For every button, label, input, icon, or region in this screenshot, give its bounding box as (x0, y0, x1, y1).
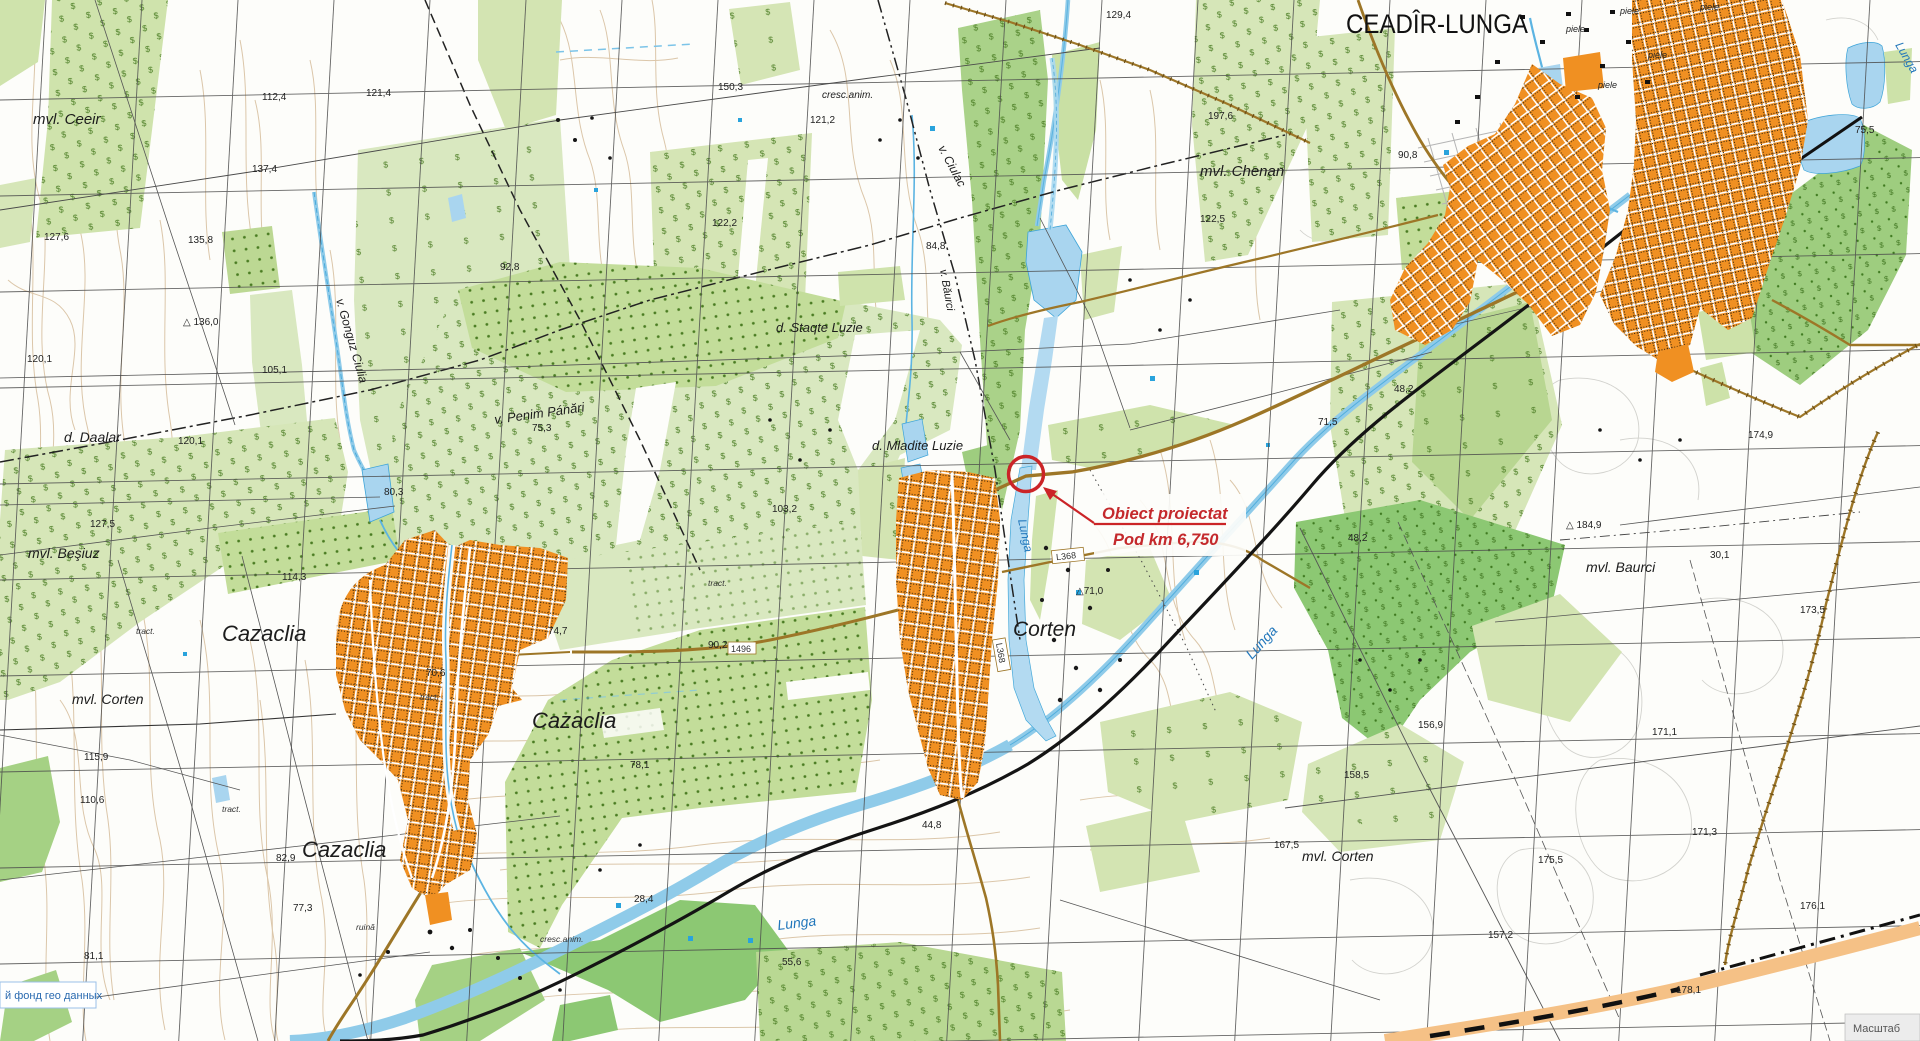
svg-text:80,3: 80,3 (384, 487, 404, 498)
svg-text:77,3: 77,3 (293, 903, 313, 914)
svg-text:82,9: 82,9 (276, 853, 296, 864)
svg-text:156,9: 156,9 (1418, 720, 1443, 731)
svg-text:90,8: 90,8 (1398, 150, 1418, 161)
svg-text:piele: piele (1597, 80, 1617, 90)
svg-text:121,4: 121,4 (366, 88, 391, 99)
svg-text:129,4: 129,4 (1106, 10, 1131, 21)
svg-text:137,4: 137,4 (252, 164, 277, 175)
svg-text:71,5: 71,5 (1318, 417, 1338, 428)
svg-text:174,9: 174,9 (1748, 430, 1773, 441)
svg-text:92,8: 92,8 (500, 262, 520, 273)
svg-text:75,3: 75,3 (532, 423, 552, 434)
svg-text:△ 136,0: △ 136,0 (183, 317, 219, 328)
svg-text:110,6: 110,6 (80, 795, 105, 806)
svg-text:44,8: 44,8 (922, 820, 942, 831)
svg-text:120,1: 120,1 (27, 354, 52, 365)
svg-text:28,4: 28,4 (634, 894, 654, 905)
svg-text:175,5: 175,5 (1538, 855, 1563, 866)
svg-text:176,1: 176,1 (1800, 901, 1825, 912)
svg-text:tract.: tract. (708, 578, 727, 588)
svg-text:△71,0: △71,0 (1076, 586, 1104, 597)
svg-text:piele: piele (1565, 24, 1585, 34)
svg-text:48,2: 48,2 (1348, 533, 1368, 544)
svg-text:90,2: 90,2 (708, 640, 728, 651)
svg-text:tract.: tract. (420, 692, 439, 702)
svg-text:Масштаб: Масштаб (1853, 1023, 1900, 1035)
svg-text:d. Mladite Luzie: d. Mladite Luzie (872, 438, 963, 453)
svg-text:70,6: 70,6 (426, 668, 446, 679)
svg-text:mvl. Corten: mvl. Corten (72, 691, 144, 707)
svg-text:d. Daalar: d. Daalar (64, 429, 122, 445)
svg-text:Pod km 6,750: Pod km 6,750 (1113, 531, 1219, 549)
svg-text:150,3: 150,3 (718, 82, 743, 93)
svg-text:171,3: 171,3 (1692, 827, 1717, 838)
svg-text:△ 184,9: △ 184,9 (1566, 520, 1602, 531)
svg-text:171,1: 171,1 (1652, 727, 1677, 738)
svg-text:piele: piele (1619, 6, 1639, 16)
svg-text:mvl. Beşiuz: mvl. Beşiuz (28, 545, 100, 561)
svg-text:105,1: 105,1 (262, 365, 287, 376)
svg-text:167,5: 167,5 (1274, 840, 1299, 851)
svg-text:81,1: 81,1 (84, 951, 104, 962)
svg-text:74,7: 74,7 (548, 626, 568, 637)
svg-text:Cazaclia: Cazaclia (302, 837, 386, 862)
svg-text:й фонд гео данных: й фонд гео данных (5, 990, 103, 1002)
svg-text:tract.: tract. (222, 804, 241, 814)
svg-text:173,5: 173,5 (1800, 605, 1825, 616)
svg-text:127,5: 127,5 (90, 519, 115, 530)
svg-text:84,8: 84,8 (926, 241, 946, 252)
svg-text:122,5: 122,5 (1200, 214, 1225, 225)
svg-text:158,5: 158,5 (1344, 770, 1369, 781)
svg-text:115,9: 115,9 (84, 752, 109, 763)
svg-text:Obiect proiectat: Obiect proiectat (1102, 505, 1229, 523)
svg-text:tract.: tract. (136, 626, 155, 636)
svg-text:122,2: 122,2 (712, 218, 737, 229)
svg-text:mvl. Corten: mvl. Corten (1302, 848, 1374, 864)
svg-text:55,6: 55,6 (782, 957, 802, 968)
svg-text:piele: piele (1647, 50, 1667, 60)
svg-text:120,1: 120,1 (178, 436, 203, 447)
svg-text:cresc.anim.: cresc.anim. (540, 934, 583, 944)
svg-text:178,1: 178,1 (1676, 985, 1701, 996)
svg-text:Corten: Corten (1013, 618, 1076, 641)
svg-text:mvl. Ceeir: mvl. Ceeir (33, 111, 102, 128)
svg-text:103,2: 103,2 (772, 504, 797, 515)
svg-text:Cazaclia: Cazaclia (532, 708, 616, 733)
svg-text:mvl. Baurci: mvl. Baurci (1586, 559, 1656, 575)
svg-text:48,2: 48,2 (1394, 384, 1414, 395)
svg-text:1496: 1496 (731, 644, 751, 654)
svg-text:ruină: ruină (356, 922, 375, 932)
svg-text:112,4: 112,4 (262, 92, 287, 103)
svg-text:75,5: 75,5 (1855, 125, 1875, 136)
svg-text:cresc.anim.: cresc.anim. (822, 90, 873, 101)
svg-text:30,1: 30,1 (1710, 550, 1730, 561)
svg-text:L368: L368 (1056, 550, 1077, 562)
svg-text:mvl. Chenan: mvl. Chenan (1200, 163, 1284, 180)
svg-text:157,2: 157,2 (1488, 930, 1513, 941)
svg-text:78,1: 78,1 (630, 760, 650, 771)
svg-text:114,3: 114,3 (282, 572, 307, 583)
svg-text:127,6: 127,6 (44, 232, 69, 243)
svg-text:121,2: 121,2 (810, 115, 835, 126)
svg-text:d. Staqte Luzie: d. Staqte Luzie (776, 320, 863, 335)
svg-text:197,6: 197,6 (1208, 111, 1233, 122)
svg-text:CEADÎR-LUNGA: CEADÎR-LUNGA (1346, 8, 1528, 39)
svg-text:piele: piele (1699, 2, 1719, 12)
svg-text:Cazaclia: Cazaclia (222, 621, 306, 646)
svg-text:135,8: 135,8 (188, 235, 213, 246)
